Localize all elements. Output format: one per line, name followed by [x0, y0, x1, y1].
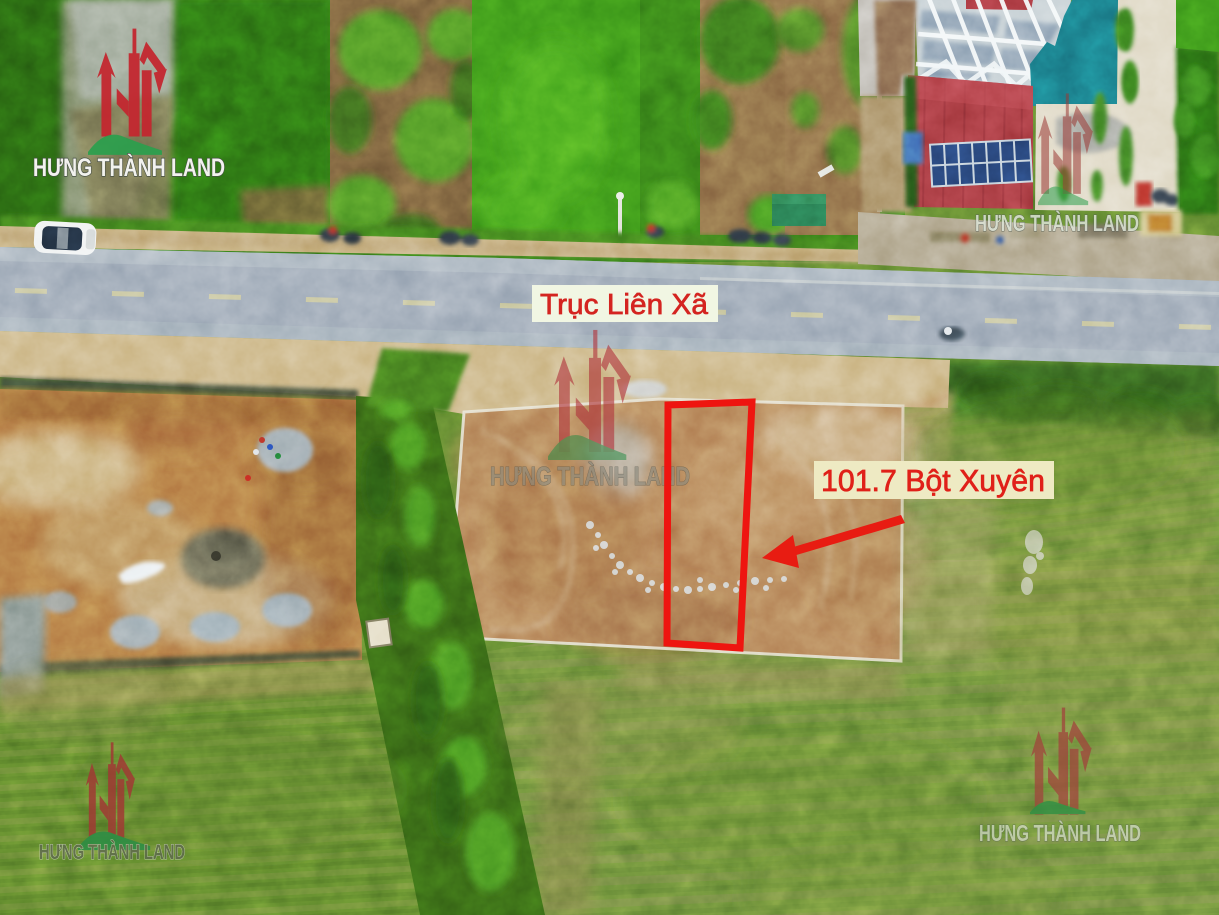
svg-text:HƯNG THÀNH LAND: HƯNG THÀNH LAND: [490, 461, 690, 491]
svg-text:HƯNG THÀNH LAND: HƯNG THÀNH LAND: [33, 153, 225, 182]
svg-text:HƯNG THÀNH LAND: HƯNG THÀNH LAND: [39, 841, 185, 864]
svg-text:Trục Liên Xã: Trục Liên Xã: [540, 289, 709, 321]
svg-text:101.7 Bột Xuyên: 101.7 Bột Xuyên: [821, 463, 1045, 498]
svg-text:HƯNG THÀNH LAND: HƯNG THÀNH LAND: [979, 819, 1141, 846]
svg-text:HƯNG THÀNH LAND: HƯNG THÀNH LAND: [975, 209, 1139, 236]
